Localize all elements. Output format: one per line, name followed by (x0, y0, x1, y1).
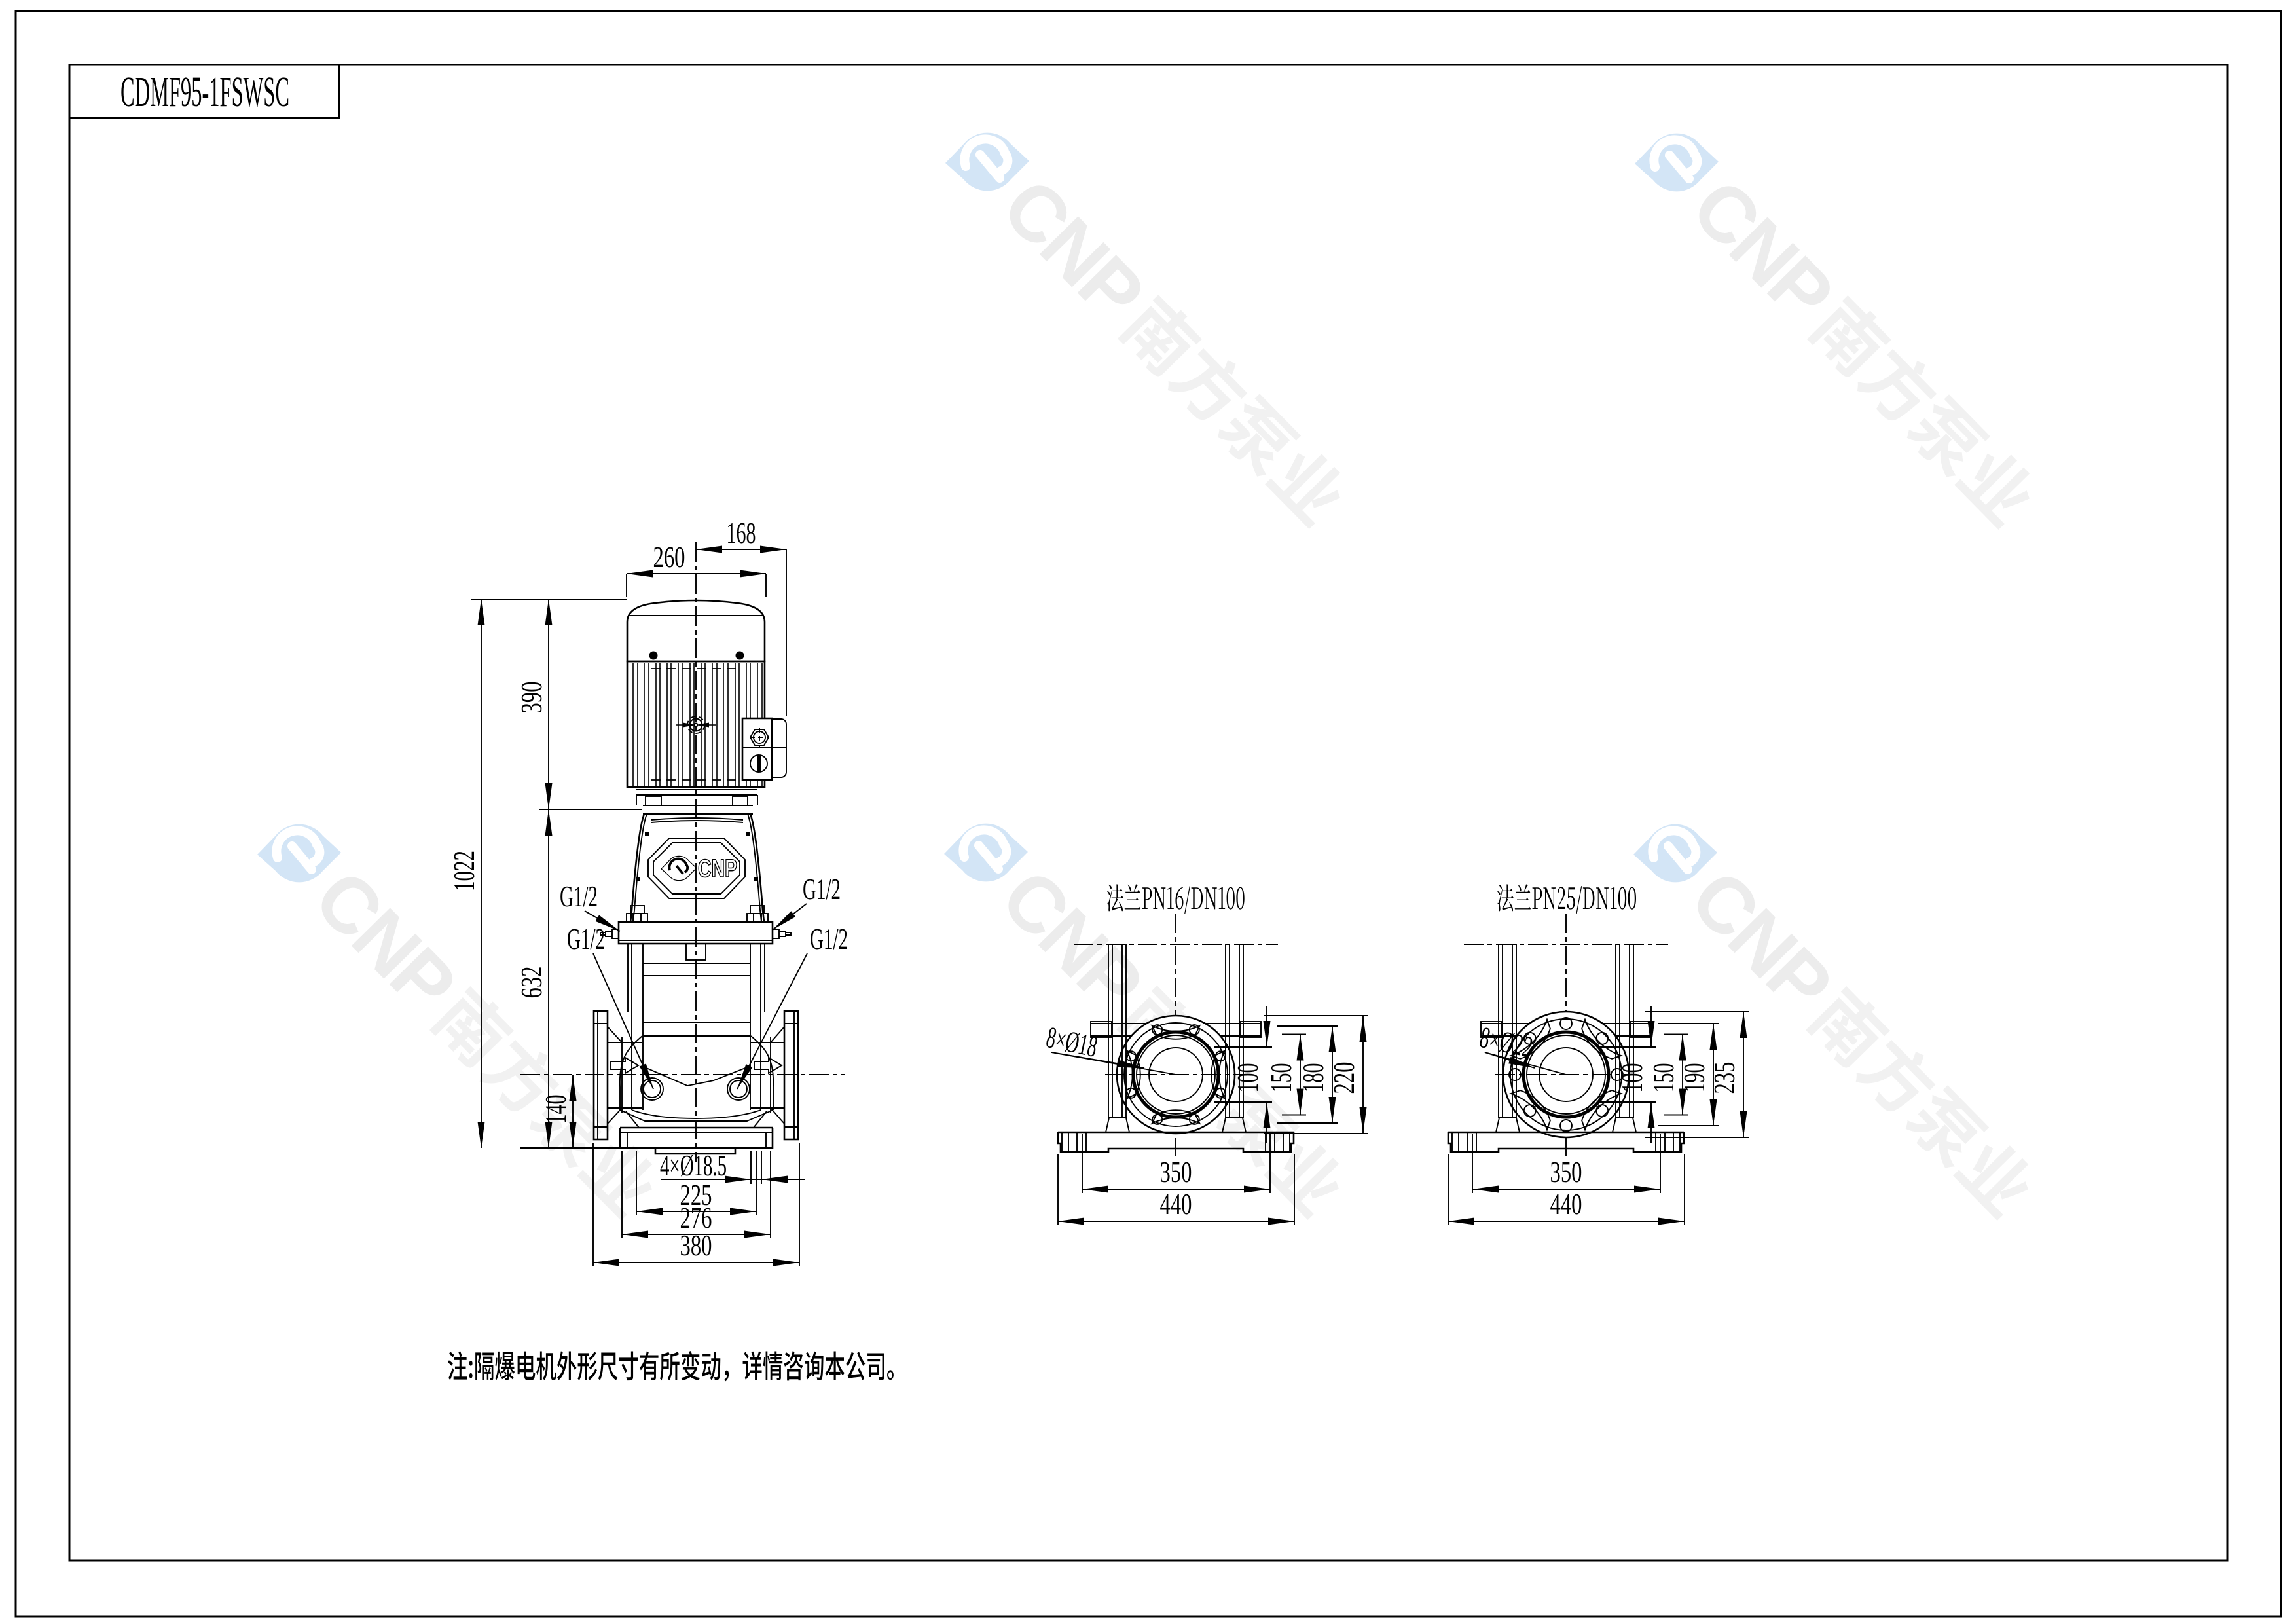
svg-text:G1/2: G1/2 (803, 872, 841, 906)
svg-text:220: 220 (1327, 1062, 1360, 1094)
svg-text:CNP: CNP (698, 855, 737, 883)
svg-text:G1/2: G1/2 (567, 922, 605, 955)
svg-text:350: 350 (1160, 1155, 1192, 1189)
svg-text:4×Ø18.5: 4×Ø18.5 (660, 1149, 727, 1182)
svg-text:632: 632 (515, 967, 548, 999)
svg-text:CDMF95-1FSWSC: CDMF95-1FSWSC (120, 68, 289, 116)
svg-text:100: 100 (1231, 1063, 1264, 1093)
svg-text:190: 190 (1677, 1063, 1711, 1093)
svg-text:1022: 1022 (447, 851, 481, 891)
svg-text:380: 380 (680, 1228, 712, 1262)
svg-text:260: 260 (653, 540, 685, 574)
svg-text:140: 140 (539, 1095, 572, 1124)
svg-text:150: 150 (1264, 1063, 1298, 1093)
svg-text:168: 168 (727, 516, 756, 549)
svg-text:350: 350 (1550, 1155, 1582, 1189)
svg-text:440: 440 (1550, 1187, 1582, 1221)
svg-text:390: 390 (515, 682, 548, 714)
svg-text:G1/2: G1/2 (560, 879, 598, 913)
svg-text:235: 235 (1707, 1062, 1741, 1094)
svg-text:440: 440 (1160, 1187, 1192, 1221)
svg-text:G1/2: G1/2 (810, 922, 848, 955)
svg-text:100: 100 (1615, 1063, 1649, 1093)
svg-text:150: 150 (1647, 1063, 1680, 1093)
svg-text:180: 180 (1296, 1063, 1330, 1093)
